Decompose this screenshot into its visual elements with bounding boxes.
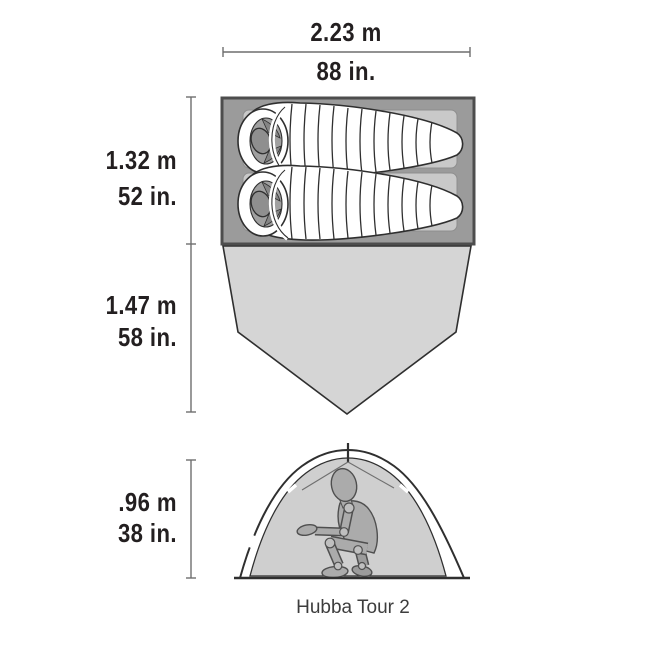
product-name-label: Hubba Tour 2 <box>253 597 453 619</box>
interior-length-metric-label: 1.32 m <box>61 145 177 175</box>
sleeping-bag-top <box>238 102 463 177</box>
tent-top-view <box>222 98 474 414</box>
peak-height-imperial-label: 38 in. <box>61 518 177 548</box>
width-imperial-label: 88 in. <box>244 56 448 86</box>
tent-side-view <box>234 443 470 579</box>
width-metric-label: 2.23 m <box>244 17 448 47</box>
interior-length-imperial-label: 52 in. <box>61 181 177 211</box>
vestibule-length-dimension-line <box>186 244 196 412</box>
interior-length-dimension-line <box>186 97 196 244</box>
peak-height-metric-label: .96 m <box>61 487 177 517</box>
sleeping-bag-bottom <box>238 165 463 240</box>
tent-spec-diagram: 2.23 m 88 in. 1.32 m 52 in. 1.47 m 58 in… <box>0 0 650 650</box>
vestibule-length-imperial-label: 58 in. <box>61 322 177 352</box>
vestibule-footprint <box>223 246 471 414</box>
vestibule-length-metric-label: 1.47 m <box>61 290 177 320</box>
peak-height-dimension-line <box>186 460 196 578</box>
